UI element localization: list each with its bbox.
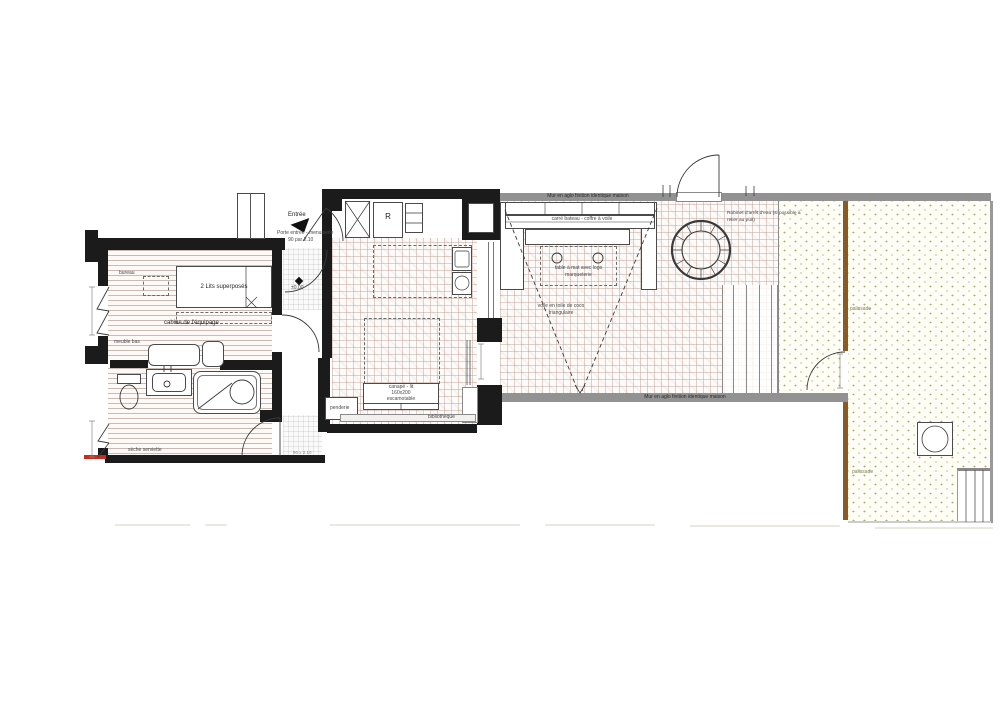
wall	[85, 346, 98, 364]
bedroom-door-arc	[282, 315, 319, 352]
wardrobe-label: penderie	[330, 406, 349, 412]
terrace-steps	[722, 285, 778, 394]
sail-label2: triangulaire	[521, 311, 601, 317]
wall-divider	[110, 360, 148, 368]
wall	[85, 230, 98, 262]
entrance-door-label1: Porte entrée - menuiserie	[277, 231, 333, 237]
duct-box	[468, 203, 494, 233]
kitchen-sink	[452, 247, 472, 271]
sofa-bed-unfolded	[364, 318, 440, 384]
chimney-divider	[250, 193, 251, 239]
kitchen-cabinet-x	[345, 201, 370, 238]
garden-bottom-edge	[848, 521, 991, 523]
wall	[98, 250, 108, 286]
wall-bathroom-bottom	[105, 455, 325, 463]
fence-palissade-upper	[843, 201, 848, 351]
wall-living-left	[318, 358, 330, 432]
fence-label-lower: palissade	[852, 470, 873, 476]
tap-label1: Robinet d'arrêt d'eau (si possible à	[727, 211, 801, 217]
wall	[322, 199, 342, 211]
bench-label: carré bateau - coffre à voile	[507, 217, 657, 223]
sink-basin	[152, 373, 186, 392]
wall-living-bottom	[327, 424, 477, 433]
kitchen-hob	[452, 272, 472, 295]
wall-top-label: Mur en aglo finition identique maison	[508, 194, 668, 200]
terrace-door-threshold	[676, 192, 722, 202]
chimney	[237, 193, 265, 239]
entrance-floor	[283, 248, 322, 310]
step-line	[771, 285, 772, 394]
wall	[98, 336, 108, 364]
room-label-cabin: cabine de l'équipage	[164, 320, 219, 327]
table-label2: marqueterie	[540, 273, 617, 279]
garden-right-boundary	[990, 201, 993, 523]
bathtub-inner	[197, 375, 257, 410]
step-line	[746, 285, 747, 394]
faint-line	[875, 527, 993, 529]
desk	[143, 276, 169, 296]
wall-bedroom-right	[272, 250, 282, 315]
bathroom-door-dim: 90 x 2.10	[293, 450, 312, 455]
bench-top-band	[505, 202, 655, 215]
terrace-door-arc	[677, 155, 719, 197]
wall-bedroom-top	[98, 238, 285, 250]
garden-steps	[957, 468, 991, 523]
sail-label1: voile en toile de coco	[521, 304, 601, 310]
wall-bottom-label: Mur en aglo finition identique maison	[600, 395, 770, 401]
faint-line	[330, 524, 520, 526]
glass-wall	[488, 242, 494, 318]
towel-dryer-marker	[84, 455, 106, 459]
step-line	[759, 285, 760, 394]
wall	[272, 370, 282, 412]
sofa-line	[363, 403, 439, 404]
bed-label: 2 Lits superposés	[178, 284, 270, 291]
level-label: ±0,00	[291, 286, 303, 292]
towel-dryer-label: sèche serviette	[128, 448, 162, 454]
kitchen-cabinet	[405, 203, 423, 233]
bookshelf-box	[340, 414, 476, 422]
entrance-label: Entrée	[288, 212, 306, 219]
fence-palissade-lower	[843, 402, 848, 520]
faint-line	[205, 524, 227, 526]
fence-label-upper: palissade	[850, 307, 871, 313]
wall-bay-column-upper	[477, 318, 502, 342]
entrance-door-label2: 90 par 2.10	[288, 238, 313, 244]
wall-divider	[220, 360, 282, 370]
toilet-tank	[117, 374, 141, 384]
low-cabinet	[148, 344, 200, 366]
floor-plan: bureau 2 Lits superposés cabine de l'équ…	[0, 0, 1000, 707]
desk-label: bureau	[119, 271, 135, 277]
faint-line	[545, 524, 655, 526]
terrace-garden-border	[778, 201, 779, 394]
faint-line	[690, 525, 840, 527]
wall	[260, 410, 282, 422]
bookshelf-label: bibliothèque	[428, 415, 455, 421]
bench-band3	[525, 229, 630, 245]
sofa-label3: escamotable	[363, 397, 439, 403]
low-cabinet	[202, 341, 224, 367]
cabinet-label: meuble bas	[114, 340, 140, 346]
step-line	[733, 285, 734, 394]
wall-bay-column-lower	[477, 385, 502, 425]
garden-manhole	[917, 422, 953, 456]
table-label1: table à mat avec logo	[540, 266, 617, 272]
tap-label2: relier au puit)	[727, 218, 755, 224]
faint-line	[115, 524, 190, 526]
fridge-label: R	[373, 212, 403, 221]
garden-gravel-strip	[779, 201, 843, 394]
